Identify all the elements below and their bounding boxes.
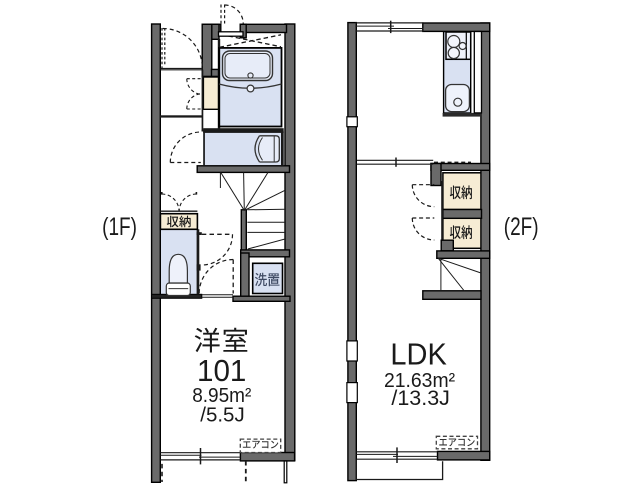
svg-text:(1F): (1F): [102, 212, 137, 240]
svg-text:(2F): (2F): [504, 212, 539, 240]
svg-text:/5.5J: /5.5J: [200, 404, 244, 427]
svg-text:LDK: LDK: [390, 338, 447, 372]
svg-text:101: 101: [197, 355, 246, 388]
svg-text:/13.3J: /13.3J: [391, 386, 450, 410]
